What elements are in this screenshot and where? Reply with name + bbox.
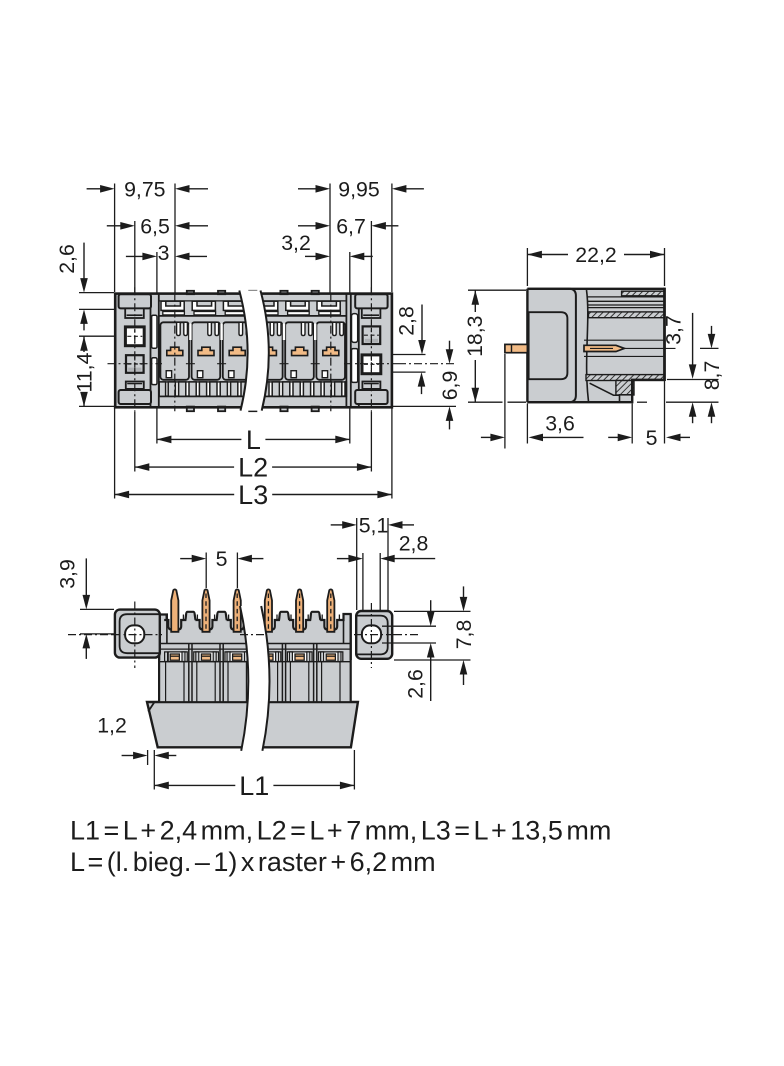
svg-text:L2: L2 (238, 453, 268, 483)
svg-text:2,8: 2,8 (399, 532, 429, 556)
svg-text:22,2: 22,2 (575, 243, 616, 267)
svg-text:6,5: 6,5 (140, 214, 170, 238)
svg-text:5: 5 (216, 547, 228, 571)
svg-text:3: 3 (158, 241, 170, 265)
svg-text:2,6: 2,6 (404, 669, 428, 699)
svg-text:3,6: 3,6 (545, 412, 575, 436)
svg-text:9,75: 9,75 (124, 177, 165, 201)
svg-text:2,6: 2,6 (55, 244, 79, 274)
svg-text:L = (l. bieg. – 1) x raster +: L = (l. bieg. – 1) x raster + 6,2 mm (70, 847, 436, 877)
svg-text:L1 = L + 2,4 mm, L2 = L + 7 mm: L1 = L + 2,4 mm, L2 = L + 7 mm, L3 = L +… (70, 816, 611, 846)
svg-text:2,8: 2,8 (395, 306, 419, 336)
svg-text:6,7: 6,7 (336, 214, 366, 238)
svg-text:11,4: 11,4 (73, 352, 97, 392)
svg-text:1,2: 1,2 (97, 714, 127, 738)
svg-text:3,2: 3,2 (281, 231, 311, 255)
svg-text:5,1: 5,1 (359, 514, 389, 538)
svg-text:5: 5 (646, 426, 658, 450)
svg-text:3,7: 3,7 (662, 315, 686, 345)
svg-text:3,9: 3,9 (56, 559, 80, 589)
svg-text:L3: L3 (238, 480, 268, 510)
svg-text:18,3: 18,3 (463, 315, 487, 356)
svg-text:L1: L1 (239, 771, 269, 801)
svg-text:9,95: 9,95 (338, 177, 379, 201)
svg-text:7,8: 7,8 (452, 620, 476, 650)
svg-text:L: L (246, 425, 261, 455)
svg-text:6,9: 6,9 (438, 371, 462, 401)
svg-text:8,7: 8,7 (700, 361, 724, 391)
